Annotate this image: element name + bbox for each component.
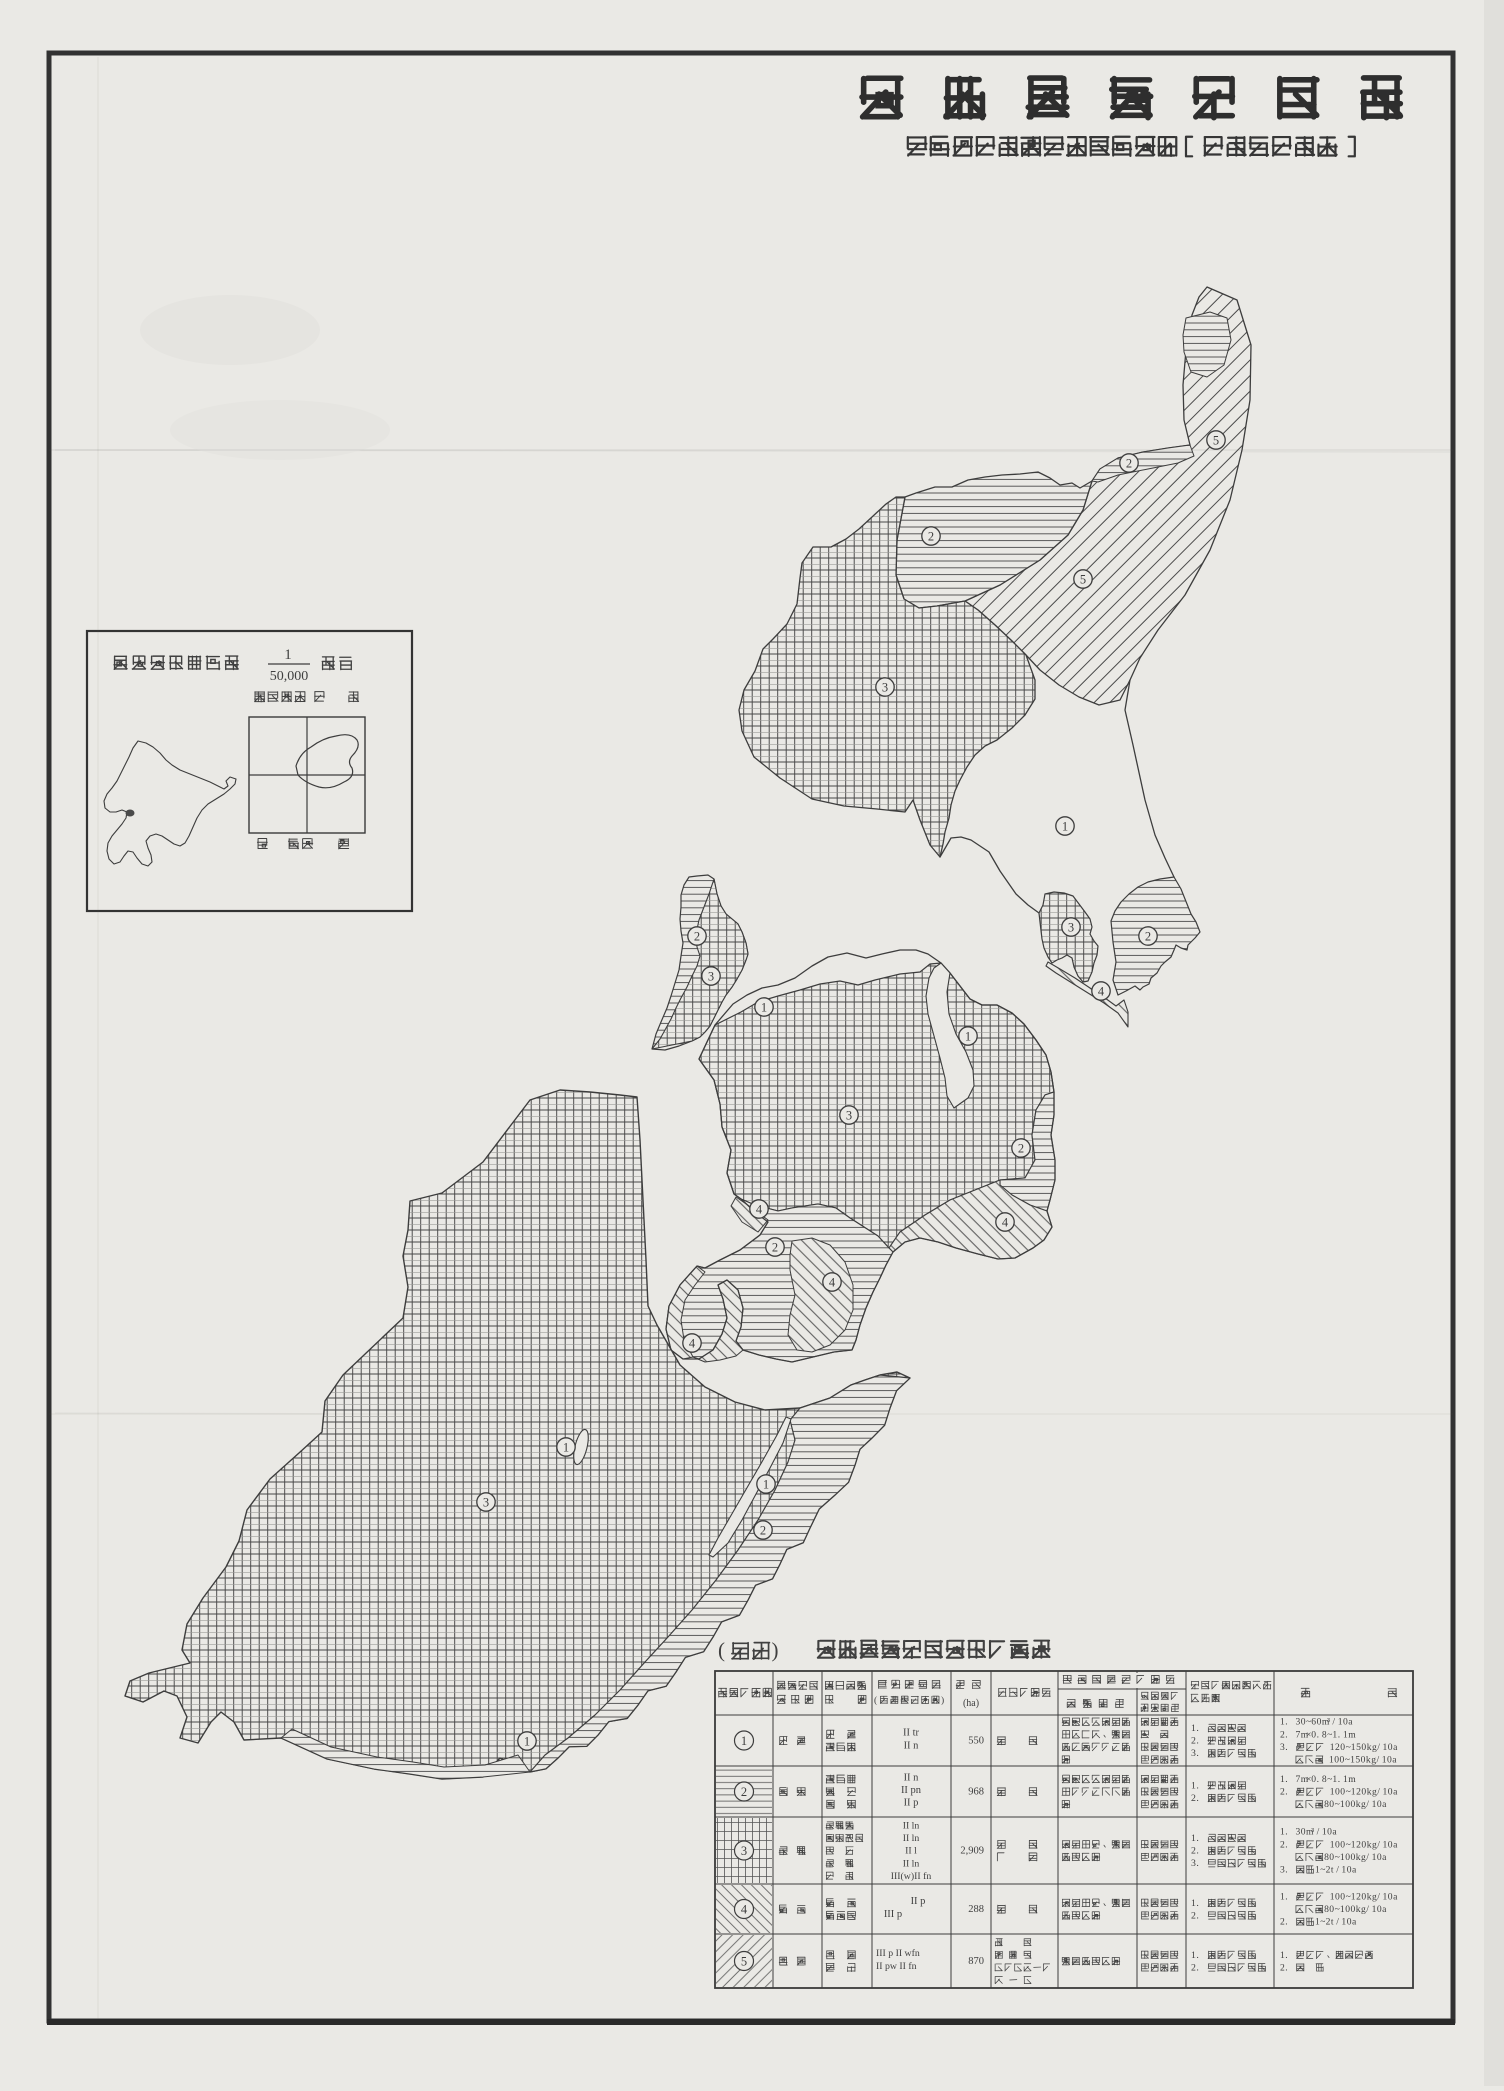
- svg-text:1: 1: [1343, 1774, 1348, 1785]
- svg-text:II p: II p: [911, 1896, 926, 1907]
- svg-text:a: a: [1393, 1892, 1398, 1903]
- svg-text:1: 1: [1330, 1839, 1335, 1850]
- svg-text:a: a: [1352, 1917, 1357, 1928]
- svg-text:3: 3: [1191, 1748, 1196, 1759]
- svg-text:0: 0: [1361, 1787, 1366, 1798]
- svg-text:a: a: [1332, 1827, 1337, 1838]
- svg-text:(: (: [718, 1638, 725, 1662]
- svg-text:II ln: II ln: [903, 1821, 920, 1832]
- svg-text:.: .: [1285, 1950, 1287, 1961]
- svg-text:.: .: [1285, 1787, 1287, 1798]
- svg-text:2: 2: [1326, 1917, 1331, 1928]
- svg-text:1: 1: [1280, 1892, 1285, 1903]
- svg-text:2: 2: [1191, 1910, 1196, 1921]
- svg-text:.: .: [1285, 1962, 1287, 1973]
- svg-text:4: 4: [756, 1202, 763, 1216]
- svg-text:0: 0: [1317, 1717, 1322, 1728]
- svg-text:0: 0: [1347, 1865, 1352, 1876]
- svg-text:III p: III p: [884, 1909, 902, 1920]
- svg-text:2: 2: [1280, 1962, 1285, 1973]
- svg-text:.: .: [1338, 1729, 1340, 1740]
- svg-text:1: 1: [1062, 819, 1068, 833]
- svg-text:1: 1: [1350, 1755, 1355, 1766]
- svg-text:1: 1: [1351, 1839, 1356, 1850]
- svg-text:II n: II n: [904, 1773, 920, 1784]
- svg-text:a: a: [1392, 1755, 1397, 1766]
- svg-text:1: 1: [1383, 1742, 1388, 1753]
- svg-text:1: 1: [1351, 1787, 1356, 1798]
- svg-text:3: 3: [483, 1495, 489, 1509]
- svg-text:a: a: [1382, 1904, 1387, 1915]
- svg-text:6: 6: [1311, 1717, 1316, 1728]
- svg-text:0: 0: [1340, 1755, 1345, 1766]
- svg-text:.: .: [1285, 1839, 1287, 1850]
- svg-text:II pn: II pn: [901, 1785, 922, 1796]
- svg-text:1: 1: [1340, 1799, 1345, 1810]
- svg-text:0: 0: [1335, 1787, 1340, 1798]
- svg-text:.: .: [1285, 1865, 1287, 1876]
- svg-text:/: /: [1366, 1799, 1369, 1810]
- svg-text:m: m: [1348, 1774, 1356, 1785]
- svg-text:t: t: [1331, 1917, 1334, 1928]
- svg-text:1: 1: [284, 647, 292, 663]
- svg-text:2: 2: [694, 929, 700, 943]
- svg-text:.: .: [1196, 1833, 1198, 1844]
- svg-text:II n: II n: [904, 1741, 920, 1752]
- svg-text:g: g: [1361, 1799, 1366, 1810]
- svg-text:0: 0: [1311, 1774, 1316, 1785]
- svg-text:a: a: [1393, 1742, 1398, 1753]
- svg-text:1: 1: [1330, 1787, 1335, 1798]
- svg-text:k: k: [1367, 1839, 1372, 1850]
- svg-text:1: 1: [1340, 1904, 1345, 1915]
- svg-text:2: 2: [1356, 1787, 1361, 1798]
- svg-text:/: /: [1377, 1755, 1380, 1766]
- svg-text:.: .: [1196, 1962, 1198, 1973]
- svg-text:0: 0: [1311, 1729, 1316, 1740]
- svg-text:3: 3: [1280, 1865, 1285, 1876]
- svg-text:1: 1: [741, 1734, 747, 1748]
- svg-text:2,909: 2,909: [960, 1846, 984, 1857]
- svg-text:/: /: [1317, 1827, 1320, 1838]
- svg-text:0: 0: [1334, 1755, 1339, 1766]
- svg-text:.: .: [1196, 1736, 1198, 1747]
- svg-text:3: 3: [741, 1844, 747, 1858]
- svg-text:1: 1: [1330, 1892, 1335, 1903]
- svg-text:.: .: [1285, 1774, 1287, 1785]
- svg-text:2: 2: [741, 1785, 747, 1799]
- svg-text:2: 2: [1326, 1865, 1331, 1876]
- svg-text:1: 1: [1383, 1787, 1388, 1798]
- svg-text:³: ³: [1327, 1717, 1330, 1728]
- svg-text:.: .: [1285, 1729, 1287, 1740]
- svg-text:1: 1: [1280, 1950, 1285, 1961]
- svg-text:a: a: [1382, 1799, 1387, 1810]
- svg-text:.: .: [1196, 1858, 1198, 1869]
- svg-text:k: k: [1367, 1892, 1372, 1903]
- svg-text:/: /: [1377, 1742, 1380, 1753]
- svg-text:): ): [941, 1695, 944, 1706]
- svg-text:5: 5: [1080, 572, 1086, 586]
- svg-text:2: 2: [1191, 1846, 1196, 1857]
- svg-text:2: 2: [928, 529, 934, 543]
- svg-text:0: 0: [1387, 1755, 1392, 1766]
- svg-text:968: 968: [968, 1787, 984, 1798]
- svg-text:1: 1: [965, 1029, 971, 1043]
- svg-text:.: .: [1196, 1780, 1198, 1791]
- svg-text:1: 1: [1280, 1717, 1285, 1728]
- svg-text:a: a: [1393, 1787, 1398, 1798]
- svg-text:0: 0: [1388, 1787, 1393, 1798]
- svg-text:³: ³: [1311, 1827, 1314, 1838]
- svg-text:0: 0: [1345, 1799, 1350, 1810]
- svg-text:0: 0: [1340, 1787, 1345, 1798]
- svg-text:0: 0: [1361, 1742, 1366, 1753]
- svg-text:0: 0: [1329, 1852, 1334, 1863]
- svg-text:0: 0: [1340, 1892, 1345, 1903]
- svg-text:0: 0: [1335, 1839, 1340, 1850]
- svg-text:2: 2: [760, 1523, 766, 1537]
- svg-text:870: 870: [968, 1956, 984, 1967]
- svg-text:k: k: [1367, 1787, 1372, 1798]
- svg-text:0: 0: [1340, 1839, 1345, 1850]
- svg-text:0: 0: [1301, 1827, 1306, 1838]
- svg-text:1: 1: [1332, 1774, 1337, 1785]
- svg-text:III(w)II fn: III(w)II fn: [891, 1871, 932, 1882]
- svg-text:1: 1: [1343, 1729, 1348, 1740]
- svg-text:1: 1: [1341, 1865, 1346, 1876]
- svg-text:k: k: [1356, 1799, 1361, 1810]
- svg-text:.: .: [1196, 1898, 1198, 1909]
- svg-text:1: 1: [1383, 1892, 1388, 1903]
- svg-text:t: t: [1331, 1865, 1334, 1876]
- svg-text:2: 2: [772, 1240, 778, 1254]
- svg-text:0: 0: [1388, 1892, 1393, 1903]
- svg-text:1: 1: [1315, 1917, 1320, 1928]
- svg-text:0: 0: [1388, 1742, 1393, 1753]
- svg-text:II l: II l: [905, 1846, 917, 1857]
- svg-text:1: 1: [1351, 1892, 1356, 1903]
- svg-text:1: 1: [524, 1734, 530, 1748]
- svg-text:0: 0: [1327, 1827, 1332, 1838]
- svg-text:): ): [772, 1638, 779, 1662]
- svg-text:1: 1: [1340, 1852, 1345, 1863]
- svg-text:1: 1: [1280, 1774, 1285, 1785]
- svg-text:/: /: [1336, 1865, 1339, 1876]
- svg-text:0: 0: [1361, 1892, 1366, 1903]
- svg-text:k: k: [1366, 1755, 1371, 1766]
- svg-text:(ha): (ha): [963, 1698, 979, 1709]
- svg-text:m: m: [1348, 1729, 1356, 1740]
- svg-text:k: k: [1356, 1904, 1361, 1915]
- svg-text:0: 0: [1347, 1917, 1352, 1928]
- svg-text:.: .: [1196, 1950, 1198, 1961]
- svg-text:2: 2: [1280, 1729, 1285, 1740]
- svg-text:1: 1: [1338, 1717, 1343, 1728]
- svg-text:0: 0: [1361, 1755, 1366, 1766]
- svg-text:.: .: [1317, 1729, 1319, 1740]
- svg-text:1: 1: [1372, 1799, 1377, 1810]
- svg-text:0: 0: [1345, 1852, 1350, 1863]
- svg-text:0: 0: [1361, 1839, 1366, 1850]
- svg-text:0: 0: [1335, 1892, 1340, 1903]
- svg-text:.: .: [1338, 1774, 1340, 1785]
- svg-text:1: 1: [761, 1000, 767, 1014]
- svg-text:5: 5: [1356, 1742, 1361, 1753]
- svg-text:2: 2: [1191, 1962, 1196, 1973]
- svg-text:1: 1: [563, 1440, 569, 1454]
- svg-text:.: .: [1196, 1723, 1198, 1734]
- svg-text:/: /: [1332, 1717, 1335, 1728]
- svg-text:.: .: [1196, 1748, 1198, 1759]
- svg-text:II ln: II ln: [903, 1858, 920, 1869]
- svg-text:1: 1: [1372, 1852, 1377, 1863]
- svg-text:2: 2: [1145, 929, 1151, 943]
- svg-text:II pw II fn: II pw II fn: [876, 1961, 917, 1972]
- svg-text:1: 1: [1341, 1917, 1346, 1928]
- svg-text:2: 2: [1356, 1892, 1361, 1903]
- svg-text:50,000: 50,000: [270, 669, 309, 684]
- svg-text:1: 1: [1332, 1729, 1337, 1740]
- svg-text:.: .: [1285, 1827, 1287, 1838]
- svg-text:1: 1: [1191, 1950, 1196, 1961]
- svg-text:/: /: [1366, 1904, 1369, 1915]
- svg-text:.: .: [1196, 1910, 1198, 1921]
- svg-text:288: 288: [968, 1904, 984, 1915]
- svg-text:.: .: [1285, 1742, 1287, 1753]
- svg-text:II p: II p: [904, 1798, 919, 1809]
- svg-text:k: k: [1367, 1742, 1372, 1753]
- svg-text:1: 1: [1191, 1780, 1196, 1791]
- svg-text:.: .: [1196, 1846, 1198, 1857]
- svg-text:/: /: [1377, 1839, 1380, 1850]
- svg-text:2: 2: [1191, 1736, 1196, 1747]
- svg-text:1: 1: [1351, 1742, 1356, 1753]
- svg-text:0: 0: [1329, 1904, 1334, 1915]
- svg-text:3: 3: [708, 969, 714, 983]
- svg-text:2: 2: [1018, 1141, 1024, 1155]
- svg-text:/: /: [1366, 1852, 1369, 1863]
- svg-text:a: a: [1348, 1717, 1353, 1728]
- svg-text:0: 0: [1343, 1717, 1348, 1728]
- svg-text:g: g: [1371, 1755, 1376, 1766]
- svg-text:1: 1: [1330, 1742, 1335, 1753]
- svg-text:a: a: [1352, 1865, 1357, 1876]
- svg-text:4: 4: [829, 1275, 836, 1289]
- svg-text:2: 2: [1280, 1787, 1285, 1798]
- svg-text:(: (: [874, 1695, 877, 1706]
- svg-text:4: 4: [1098, 984, 1105, 998]
- svg-text:3: 3: [1191, 1858, 1196, 1869]
- svg-text:.: .: [1285, 1717, 1287, 1728]
- svg-text:0: 0: [1329, 1799, 1334, 1810]
- svg-text:g: g: [1361, 1852, 1366, 1863]
- svg-text:1: 1: [1191, 1833, 1196, 1844]
- svg-text:1: 1: [1191, 1898, 1196, 1909]
- svg-text:2: 2: [1356, 1839, 1361, 1850]
- svg-text:.: .: [1285, 1917, 1287, 1928]
- svg-text:2: 2: [1335, 1742, 1340, 1753]
- svg-text:0: 0: [1345, 1904, 1350, 1915]
- svg-text:4: 4: [741, 1902, 748, 1916]
- svg-text:1: 1: [763, 1477, 769, 1491]
- svg-text:1: 1: [1372, 1904, 1377, 1915]
- svg-text:a: a: [1393, 1839, 1398, 1850]
- svg-text:k: k: [1356, 1852, 1361, 1863]
- svg-text:/: /: [1377, 1787, 1380, 1798]
- svg-text:2: 2: [1280, 1917, 1285, 1928]
- svg-text:2: 2: [1126, 456, 1132, 470]
- svg-text:0: 0: [1340, 1742, 1345, 1753]
- svg-text:III p II wfn: III p II wfn: [876, 1948, 920, 1959]
- svg-text:2: 2: [1280, 1839, 1285, 1850]
- svg-text:4: 4: [1002, 1215, 1009, 1229]
- svg-text:2: 2: [1191, 1793, 1196, 1804]
- svg-text:5: 5: [741, 1954, 747, 1968]
- svg-text:1: 1: [1191, 1723, 1196, 1734]
- svg-text:a: a: [1382, 1852, 1387, 1863]
- svg-text:3: 3: [1280, 1742, 1285, 1753]
- svg-text:1: 1: [1383, 1839, 1388, 1850]
- svg-text:1: 1: [1315, 1865, 1320, 1876]
- svg-text:.: .: [1285, 1892, 1287, 1903]
- svg-text:II ln: II ln: [903, 1833, 920, 1844]
- svg-text:3: 3: [846, 1108, 852, 1122]
- svg-text:0: 0: [1301, 1717, 1306, 1728]
- svg-text:4: 4: [689, 1336, 696, 1350]
- svg-text:g: g: [1361, 1904, 1366, 1915]
- svg-text:550: 550: [968, 1736, 984, 1747]
- svg-text:3: 3: [882, 680, 888, 694]
- svg-text:.: .: [1196, 1793, 1198, 1804]
- svg-text:/: /: [1377, 1892, 1380, 1903]
- svg-text:II tr: II tr: [903, 1728, 920, 1739]
- svg-text:5: 5: [1213, 433, 1219, 447]
- svg-text:.: .: [1317, 1774, 1319, 1785]
- svg-text:/: /: [1336, 1917, 1339, 1928]
- svg-text:1: 1: [1280, 1827, 1285, 1838]
- svg-text:0: 0: [1388, 1839, 1393, 1850]
- svg-text:3: 3: [1068, 920, 1074, 934]
